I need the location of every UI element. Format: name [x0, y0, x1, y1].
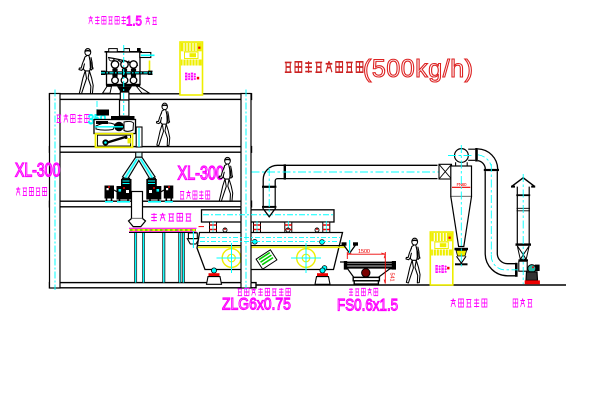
- svg-text:XL-300: XL-300: [178, 161, 225, 184]
- svg-text:XL-300: XL-300: [15, 159, 60, 181]
- svg-text:FS0.6x1.5: FS0.6x1.5: [337, 296, 398, 315]
- svg-text:1.5: 1.5: [126, 14, 142, 29]
- svg-text:ZLG6x0.75: ZLG6x0.75: [222, 295, 291, 314]
- svg-text:(500kg/h): (500kg/h): [363, 55, 473, 83]
- svg-text:1500: 1500: [358, 249, 370, 255]
- svg-text:541: 541: [389, 273, 395, 282]
